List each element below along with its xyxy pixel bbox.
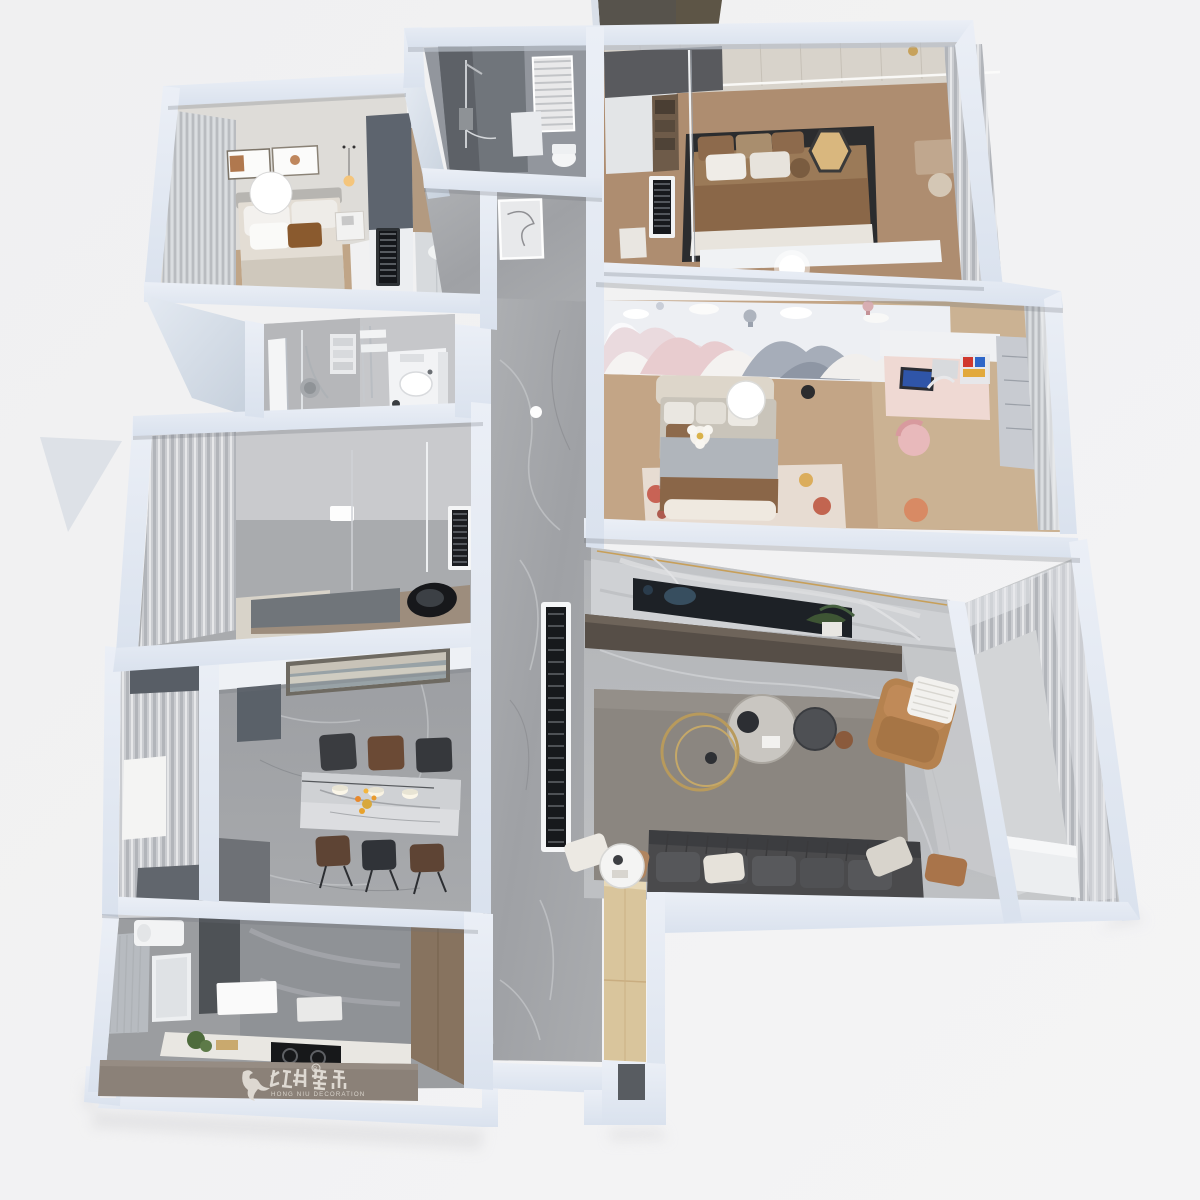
svg-text:HONG NIU DECORATION: HONG NIU DECORATION <box>271 1091 365 1098</box>
